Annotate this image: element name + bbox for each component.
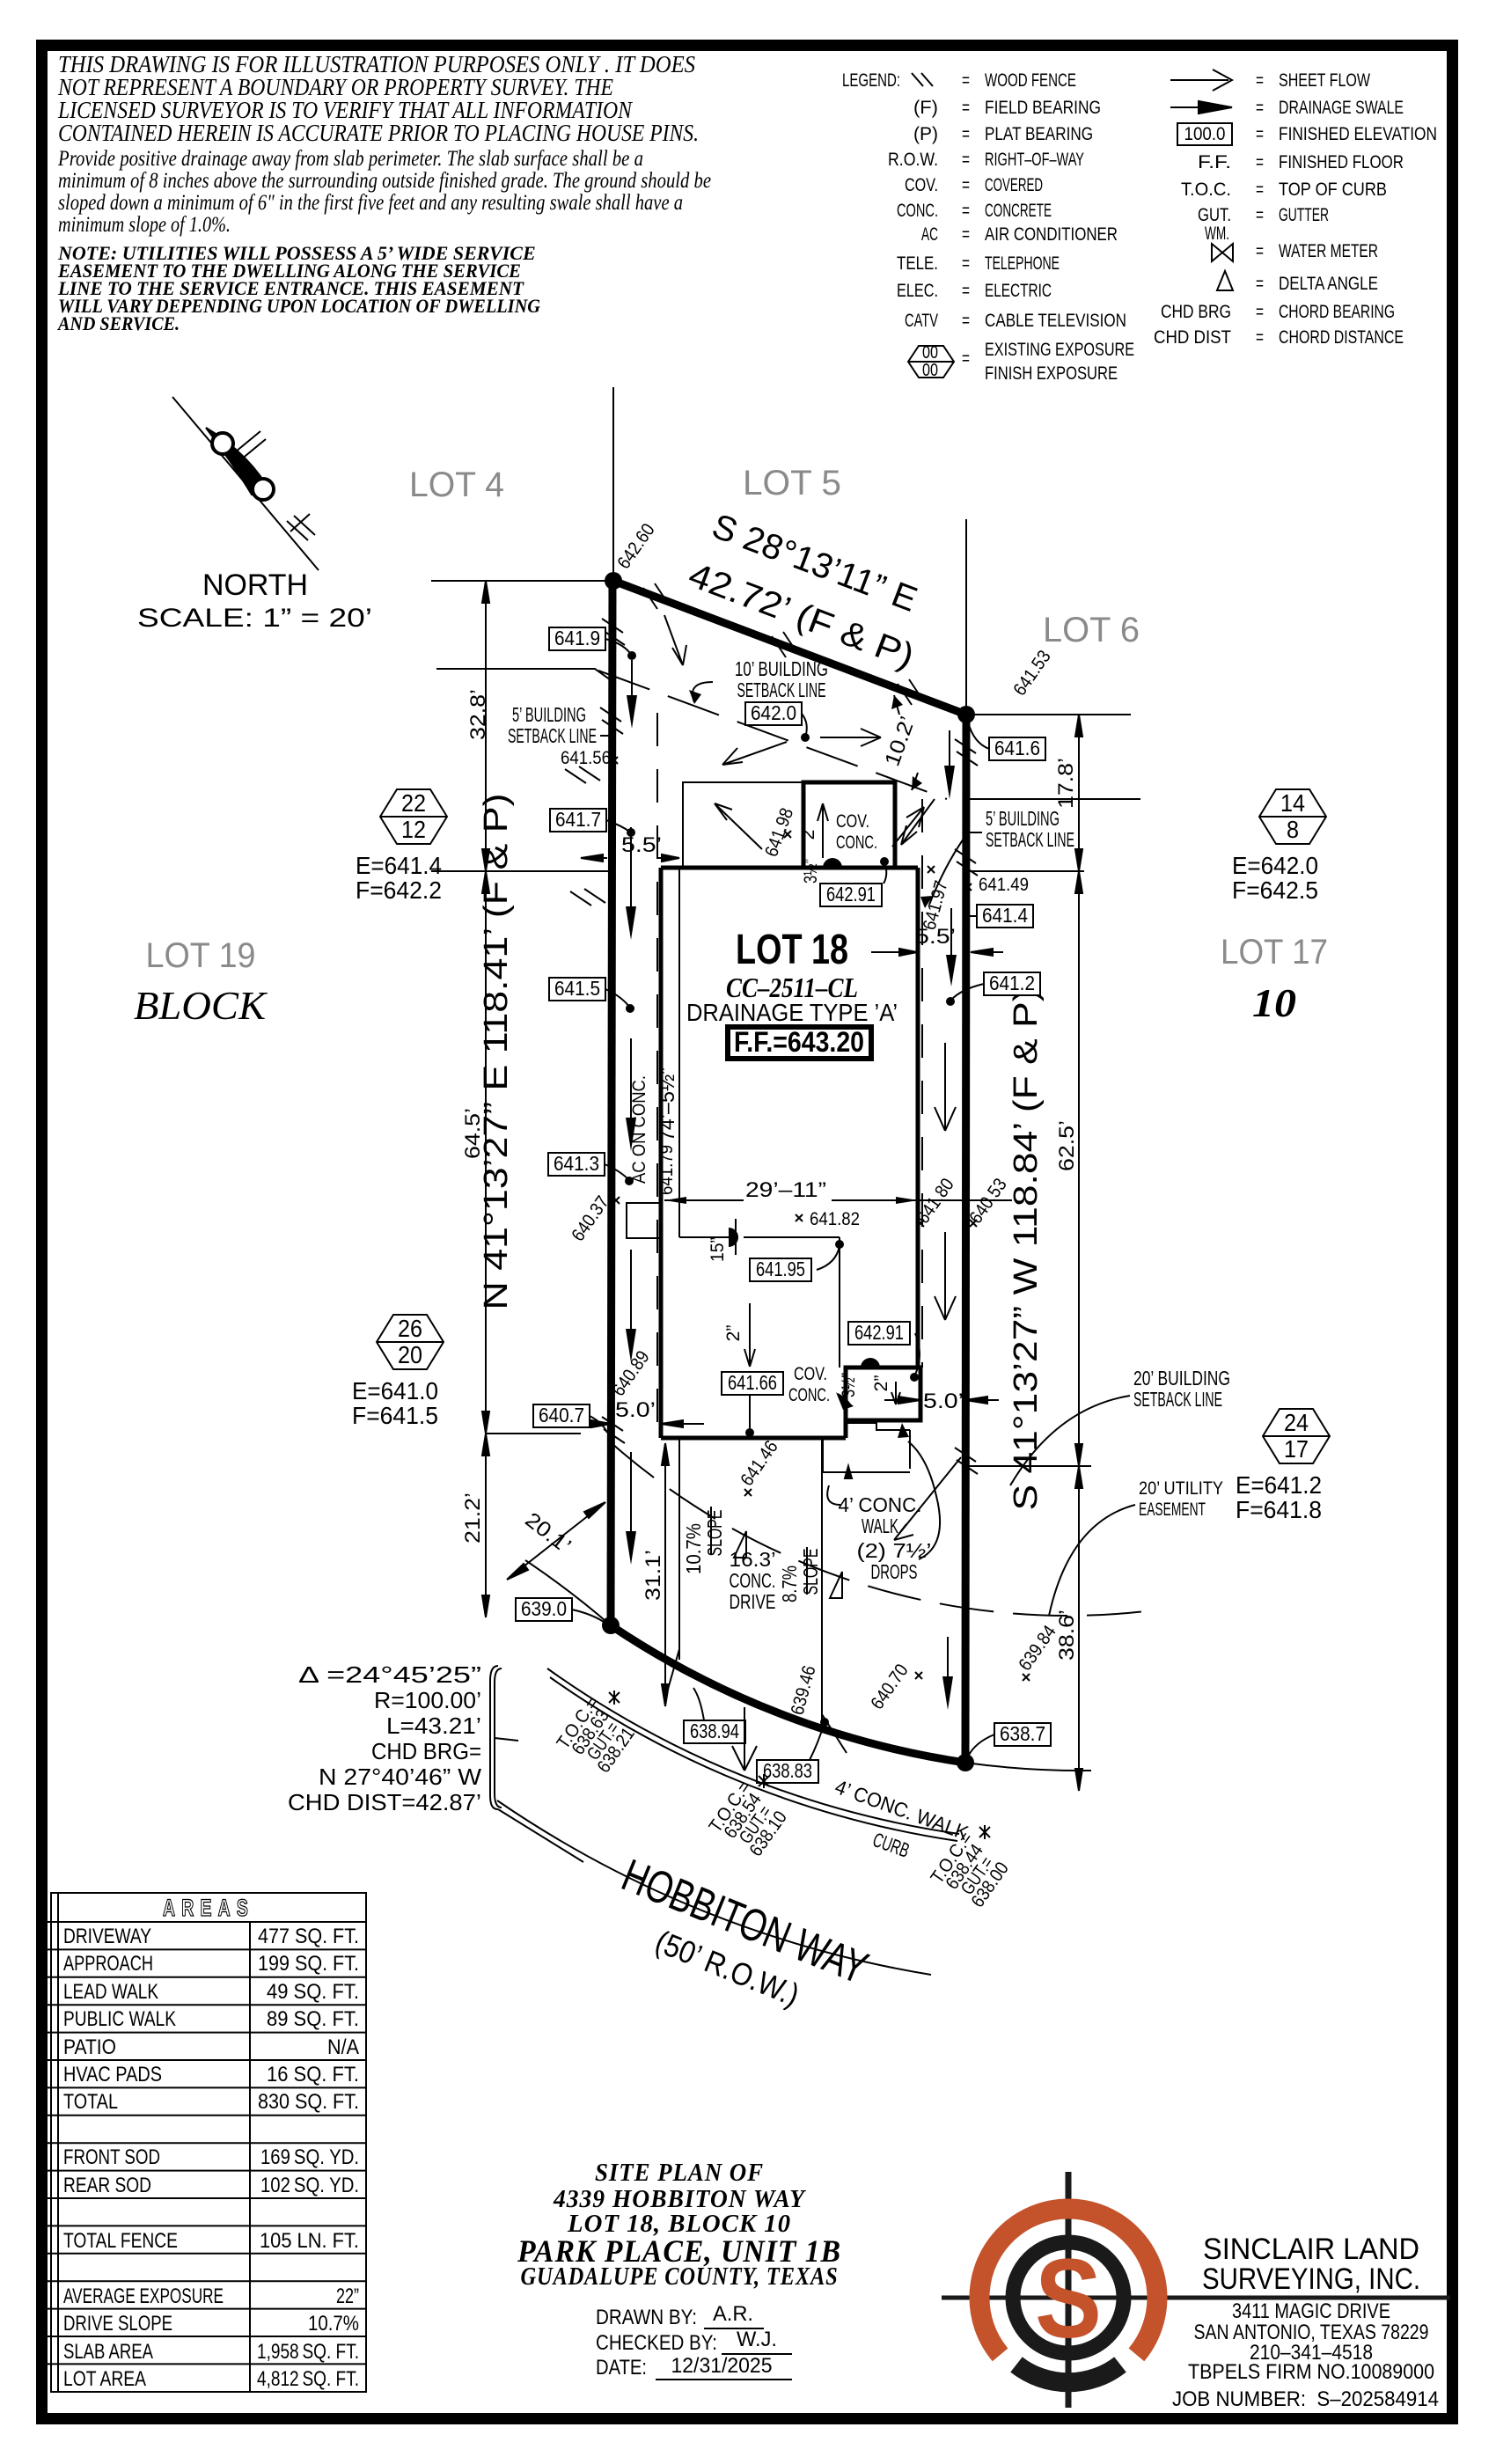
svg-text:31.1’: 31.1’ (642, 1550, 665, 1601)
svg-text:5’ BUILDING: 5’ BUILDING (512, 703, 586, 726)
svg-text:=: = (962, 348, 970, 369)
svg-text:17: 17 (1284, 1435, 1309, 1463)
svg-text:=: = (1256, 98, 1264, 118)
svg-text:14: 14 (1280, 789, 1305, 817)
svg-text:PLAT BEARING: PLAT BEARING (985, 124, 1093, 144)
svg-text:CHD BRG=: CHD BRG= (371, 1738, 481, 1764)
svg-text:COVERED: COVERED (985, 175, 1043, 195)
svg-text:477 SQ. FT.: 477 SQ. FT. (258, 1925, 359, 1948)
svg-text:HVAC PADS: HVAC PADS (63, 2063, 162, 2086)
svg-text:641.7: 641.7 (555, 808, 601, 831)
svg-text:CONC.: CONC. (897, 201, 938, 221)
svg-text:E=641.4: E=641.4 (356, 852, 442, 879)
svg-text:641.6: 641.6 (994, 737, 1040, 759)
svg-text:2”: 2” (798, 824, 818, 840)
svg-text:GUTTER: GUTTER (1279, 205, 1329, 225)
svg-text:GUADALUPE COUNTY, TEXAS: GUADALUPE COUNTY, TEXAS (521, 2262, 839, 2291)
svg-text:SETBACK LINE: SETBACK LINE (1133, 1388, 1222, 1411)
svg-text:DRIVE: DRIVE (730, 1590, 776, 1613)
svg-text:TOP OF CURB: TOP OF CURB (1279, 180, 1387, 200)
svg-text:12/31/2025: 12/31/2025 (671, 2354, 773, 2378)
svg-text:S: S (1035, 2236, 1102, 2362)
svg-text:=: = (962, 253, 970, 274)
svg-text:CATV: CATV (905, 311, 938, 331)
svg-text:CONCRETE: CONCRETE (985, 201, 1052, 221)
svg-text:=: = (1256, 152, 1264, 172)
svg-text:641.66: 641.66 (728, 1371, 777, 1394)
svg-text:=: = (1256, 302, 1264, 322)
svg-text:10.7%: 10.7% (308, 2312, 359, 2336)
svg-text:DRIVEWAY: DRIVEWAY (63, 1925, 151, 1948)
svg-text:LOT 4: LOT 4 (409, 466, 504, 504)
svg-text:WATER METER: WATER METER (1279, 241, 1378, 261)
svg-text:CHD BRG: CHD BRG (1161, 302, 1231, 322)
svg-text:3411 MAGIC DRIVE: 3411 MAGIC DRIVE (1232, 2299, 1390, 2323)
svg-text:FINISHED FLOOR: FINISHED FLOOR (1279, 152, 1404, 172)
svg-text:SURVEYING, INC.: SURVEYING, INC. (1202, 2262, 1420, 2296)
svg-text:APPROACH: APPROACH (63, 1952, 153, 1976)
svg-text:AREAS: AREAS (163, 1895, 254, 1921)
svg-text:638.94: 638.94 (690, 1720, 739, 1742)
svg-text:21.2’: 21.2’ (461, 1492, 485, 1544)
svg-text:=: = (1256, 124, 1264, 144)
svg-text:LOT 18: LOT 18 (736, 927, 848, 973)
svg-text:F=642.2: F=642.2 (356, 876, 442, 904)
svg-text:DRAWN BY:: DRAWN BY: (596, 2306, 697, 2329)
svg-text:64.5’: 64.5’ (461, 1108, 485, 1159)
svg-text:641.9: 641.9 (554, 627, 600, 649)
svg-text:=: = (962, 150, 970, 170)
svg-text:SINCLAIR LAND: SINCLAIR LAND (1203, 2233, 1419, 2266)
svg-text:641.56: 641.56 (561, 748, 611, 768)
svg-text:641.79: 641.79 (656, 1145, 677, 1195)
svg-text:minimum slope of 1.0%.: minimum slope of 1.0%. (58, 213, 231, 237)
svg-text:16 SQ. FT.: 16 SQ. FT. (267, 2063, 359, 2086)
svg-text:LOT 17: LOT 17 (1221, 933, 1328, 972)
svg-text:639.0: 639.0 (521, 1597, 567, 1620)
svg-text:169 SQ. YD.: 169 SQ. YD. (260, 2145, 359, 2169)
svg-text:JOB NUMBER: S–202584914: JOB NUMBER: S–202584914 (1172, 2387, 1439, 2411)
svg-text:62.5’: 62.5’ (1055, 1120, 1079, 1171)
svg-text:REAR SOD: REAR SOD (63, 2174, 151, 2197)
svg-text:3½”: 3½” (801, 859, 821, 884)
svg-text:A.R.: A.R. (713, 2302, 753, 2326)
svg-text:NORTH: NORTH (202, 568, 308, 602)
svg-text:CHD DIST=42.87’: CHD DIST=42.87’ (288, 1789, 481, 1815)
svg-text:DRAINAGE TYPE ’A’: DRAINAGE TYPE ’A’ (686, 999, 898, 1026)
svg-text:641.3: 641.3 (554, 1152, 599, 1175)
svg-text:20’ UTILITY: 20’ UTILITY (1139, 1478, 1223, 1499)
svg-text:8: 8 (1287, 816, 1299, 843)
svg-text:F.F.=643.20: F.F.=643.20 (734, 1026, 864, 1058)
svg-text:5.5’: 5.5’ (621, 833, 662, 857)
svg-text:641.4: 641.4 (982, 904, 1028, 927)
svg-text:WALK: WALK (862, 1514, 898, 1537)
svg-text:=: = (1256, 241, 1264, 261)
svg-text:638.7: 638.7 (1000, 1722, 1045, 1745)
svg-text:641.95: 641.95 (756, 1258, 805, 1280)
svg-text:22”: 22” (336, 2284, 359, 2308)
svg-text:5’ BUILDING: 5’ BUILDING (986, 807, 1060, 830)
svg-text:642.0: 642.0 (751, 701, 796, 724)
svg-text:Δ =24°45’25”: Δ =24°45’25” (298, 1661, 481, 1688)
svg-text:COV.: COV. (794, 1364, 827, 1384)
svg-text:TOTAL: TOTAL (63, 2090, 118, 2114)
svg-text:FINISH EXPOSURE: FINISH EXPOSURE (985, 363, 1118, 384)
svg-text:24: 24 (1284, 1409, 1309, 1436)
svg-text:00: 00 (922, 361, 938, 380)
svg-text:641.82: 641.82 (810, 1209, 860, 1229)
svg-text:T.O.C.: T.O.C. (1181, 180, 1231, 200)
svg-text:00: 00 (922, 343, 938, 363)
svg-text:641.5: 641.5 (554, 977, 600, 1000)
svg-text:89 SQ. FT.: 89 SQ. FT. (267, 2007, 359, 2031)
svg-text:2”: 2” (871, 1375, 891, 1392)
svg-text:=: = (962, 224, 970, 245)
svg-text:638.83: 638.83 (763, 1759, 812, 1782)
svg-text:=: = (1256, 180, 1264, 200)
svg-text:199 SQ. FT.: 199 SQ. FT. (258, 1952, 359, 1976)
svg-text:TELE.: TELE. (897, 253, 938, 274)
svg-text:5.0’: 5.0’ (923, 1390, 964, 1413)
svg-text:SETBACK LINE: SETBACK LINE (508, 724, 597, 747)
svg-text:DROPS: DROPS (871, 1560, 918, 1583)
svg-text:COV.: COV. (905, 175, 938, 195)
svg-text:8.7%: 8.7% (778, 1566, 801, 1602)
svg-text:26: 26 (398, 1315, 422, 1342)
svg-text:BLOCK: BLOCK (134, 983, 268, 1028)
svg-text:ELECTRIC: ELECTRIC (985, 281, 1052, 301)
svg-text:CHORD BEARING: CHORD BEARING (1279, 302, 1395, 322)
svg-text:R=100.00’: R=100.00’ (374, 1687, 481, 1713)
svg-text:sloped down a minimum of 6" in: sloped down a minimum of 6" in the first… (58, 191, 683, 215)
svg-text:FIELD BEARING: FIELD BEARING (985, 98, 1101, 118)
svg-text:642.91: 642.91 (826, 883, 876, 906)
svg-text:17.8’: 17.8’ (1054, 758, 1078, 809)
svg-text:102 SQ. YD.: 102 SQ. YD. (260, 2174, 359, 2197)
svg-text:E=641.2: E=641.2 (1236, 1471, 1322, 1499)
svg-text:12: 12 (401, 816, 426, 843)
svg-text:SHEET FLOW: SHEET FLOW (1279, 70, 1370, 91)
svg-text:32.8’: 32.8’ (466, 689, 490, 740)
svg-text:DATE:: DATE: (596, 2356, 647, 2380)
svg-text:SLAB AREA: SLAB AREA (63, 2340, 153, 2364)
svg-text:FINISHED ELEVATION: FINISHED ELEVATION (1279, 124, 1437, 144)
svg-text:Provide positive drainage away: Provide positive drainage away from slab… (57, 147, 643, 171)
svg-text:TELEPHONE: TELEPHONE (985, 253, 1060, 274)
svg-text:=: = (1256, 70, 1264, 91)
svg-text:DRIVE SLOPE: DRIVE SLOPE (63, 2312, 172, 2336)
svg-text:(P): (P) (913, 124, 938, 144)
svg-text:SITE PLAN OF: SITE PLAN OF (595, 2159, 764, 2187)
svg-text:CABLE TELEVISION: CABLE TELEVISION (985, 311, 1126, 331)
svg-text:PUBLIC WALK: PUBLIC WALK (63, 2007, 176, 2031)
svg-text:29’–11”: 29’–11” (745, 1178, 826, 1202)
svg-text:F=642.5: F=642.5 (1232, 876, 1318, 904)
svg-text:641.2: 641.2 (989, 972, 1035, 994)
svg-text:S 41°13’27” W 118.84’ (F: S 41°13’27” W 118.84’ (F & P) (1008, 989, 1045, 1511)
svg-text:SETBACK LINE: SETBACK LINE (737, 678, 826, 701)
svg-text:F.F.: F.F. (1198, 152, 1231, 172)
svg-text:WM.: WM. (1205, 224, 1229, 244)
svg-text:10.7%: 10.7% (682, 1523, 705, 1574)
svg-text:SLOPE: SLOPE (799, 1549, 822, 1595)
svg-text:CHORD DISTANCE: CHORD DISTANCE (1279, 327, 1404, 348)
svg-text:74’–5½”: 74’–5½” (656, 1067, 679, 1141)
svg-text:SCALE: 1” = 20’: SCALE: 1” = 20’ (137, 604, 372, 633)
svg-text:4’ CONC.: 4’ CONC. (839, 1493, 922, 1516)
svg-text:=: = (1256, 274, 1264, 294)
svg-text:COV.: COV. (836, 811, 869, 832)
svg-text:EASEMENT: EASEMENT (1139, 1500, 1206, 1520)
svg-text:=: = (1256, 327, 1264, 348)
svg-text:=: = (962, 281, 970, 301)
svg-text:105 LN. FT.: 105 LN. FT. (260, 2229, 359, 2253)
svg-text:F=641.5: F=641.5 (352, 1402, 438, 1429)
svg-text:LEAD WALK: LEAD WALK (63, 1980, 158, 2004)
svg-text:DELTA ANGLE: DELTA ANGLE (1279, 274, 1378, 294)
svg-text:AND SERVICE.: AND SERVICE. (56, 312, 180, 334)
svg-text:WOOD FENCE: WOOD FENCE (985, 70, 1076, 91)
svg-text:15”: 15” (708, 1237, 728, 1262)
svg-text:CHECKED BY:: CHECKED BY: (596, 2331, 717, 2355)
svg-text:2”: 2” (723, 1325, 744, 1342)
svg-text:20’ BUILDING: 20’ BUILDING (1133, 1367, 1230, 1390)
svg-text:642.91: 642.91 (854, 1321, 904, 1344)
svg-text:FRONT SOD: FRONT SOD (63, 2145, 160, 2169)
svg-text:=: = (962, 311, 970, 331)
svg-text:ELEC.: ELEC. (897, 281, 938, 301)
svg-text:AIR CONDITIONER: AIR CONDITIONER (985, 224, 1118, 245)
svg-text:LOT 6: LOT 6 (1043, 611, 1140, 649)
svg-text:RIGHT–OF–WAY: RIGHT–OF–WAY (985, 150, 1084, 170)
svg-text:AC: AC (921, 224, 938, 245)
svg-text:F=641.8: F=641.8 (1236, 1496, 1322, 1523)
svg-text:DRAINAGE SWALE: DRAINAGE SWALE (1279, 98, 1404, 118)
svg-text:CONC.: CONC. (836, 832, 877, 853)
svg-text:CONC.: CONC. (788, 1385, 830, 1405)
svg-text:TOTAL FENCE: TOTAL FENCE (63, 2229, 178, 2253)
svg-text:AVERAGE EXPOSURE: AVERAGE EXPOSURE (63, 2284, 224, 2308)
svg-text:L=43.21’: L=43.21’ (386, 1712, 481, 1739)
svg-text:CHD DIST: CHD DIST (1154, 327, 1231, 348)
svg-text:PATIO: PATIO (63, 2035, 116, 2059)
svg-text:SETBACK LINE: SETBACK LINE (986, 828, 1074, 851)
svg-text:=: = (962, 124, 970, 144)
svg-text:E=641.0: E=641.0 (352, 1377, 438, 1404)
svg-text:(F): (F) (913, 98, 938, 118)
svg-text:LOT AREA: LOT AREA (63, 2367, 146, 2391)
svg-text:CONTAINED HEREIN IS ACCURATE P: CONTAINED HEREIN IS ACCURATE PRIOR TO PL… (58, 120, 699, 146)
svg-text:3½”: 3½” (839, 1373, 859, 1397)
svg-text:100.0: 100.0 (1184, 124, 1226, 144)
svg-text:N 27°40’46” W: N 27°40’46” W (319, 1764, 481, 1790)
svg-text:10’ BUILDING: 10’ BUILDING (735, 657, 828, 680)
svg-text:GUT.: GUT. (1198, 205, 1231, 225)
svg-text:=: = (962, 201, 970, 221)
svg-text:10: 10 (1252, 980, 1296, 1025)
svg-text:=: = (962, 70, 970, 91)
svg-text:5.0’: 5.0’ (615, 1398, 656, 1422)
svg-text:N/A: N/A (327, 2035, 359, 2059)
svg-text:LEGEND:: LEGEND: (842, 70, 900, 91)
svg-text:TBPELS FIRM NO.10089000: TBPELS FIRM NO.10089000 (1188, 2360, 1434, 2384)
svg-text:20: 20 (398, 1341, 422, 1368)
svg-text:1,958 SQ. FT.: 1,958 SQ. FT. (257, 2340, 359, 2364)
svg-text:=: = (1256, 205, 1264, 225)
svg-text:minimum of 8 inches above the: minimum of 8 inches above the surroundin… (58, 169, 711, 193)
svg-text:=: = (962, 175, 970, 195)
svg-text:E=642.0: E=642.0 (1232, 852, 1318, 879)
svg-text:CONC.: CONC. (730, 1569, 776, 1592)
svg-text:LOT 5: LOT 5 (743, 464, 841, 502)
svg-text:641.49: 641.49 (979, 875, 1029, 895)
svg-text:W.J.: W.J. (737, 2328, 777, 2351)
svg-text:SLOPE: SLOPE (703, 1510, 726, 1557)
svg-text:49 SQ. FT.: 49 SQ. FT. (267, 1980, 359, 2004)
svg-text:R.O.W.: R.O.W. (888, 150, 938, 170)
svg-text:LOT 19: LOT 19 (146, 936, 256, 975)
svg-text:640.7: 640.7 (539, 1404, 584, 1426)
svg-text:EXISTING EXPOSURE: EXISTING EXPOSURE (985, 340, 1134, 360)
svg-text:830 SQ. FT.: 830 SQ. FT. (258, 2090, 359, 2114)
svg-text:4,812 SQ. FT.: 4,812 SQ. FT. (257, 2367, 359, 2391)
svg-text:=: = (962, 98, 970, 118)
svg-text:22: 22 (401, 789, 426, 817)
